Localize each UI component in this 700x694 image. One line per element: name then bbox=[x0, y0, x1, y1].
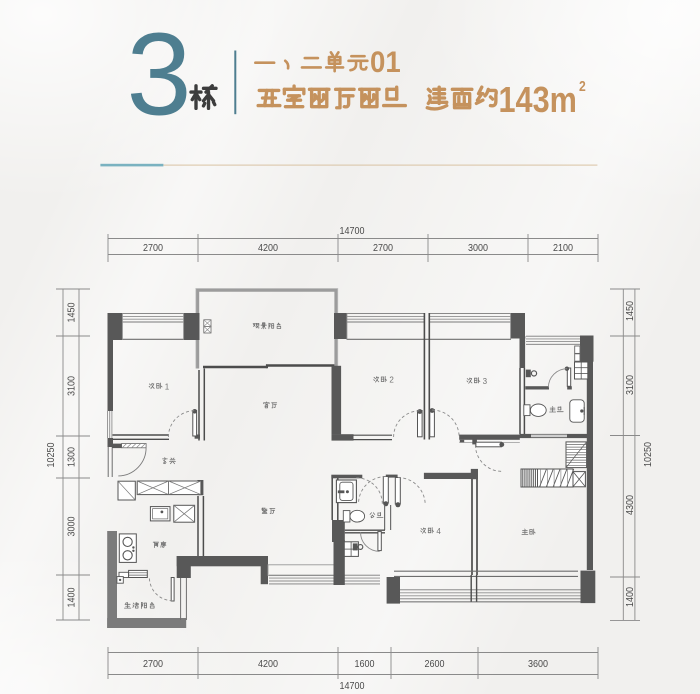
svg-text:2: 2 bbox=[579, 78, 586, 94]
svg-text:3100: 3100 bbox=[625, 375, 637, 395]
svg-text:1450: 1450 bbox=[66, 302, 78, 322]
svg-text:2100: 2100 bbox=[553, 243, 573, 255]
svg-text:2: 2 bbox=[389, 376, 394, 385]
svg-text:1400: 1400 bbox=[66, 587, 78, 607]
svg-text:14700: 14700 bbox=[340, 226, 365, 238]
svg-text:1: 1 bbox=[165, 382, 170, 391]
svg-text:1600: 1600 bbox=[354, 659, 374, 671]
svg-text:4300: 4300 bbox=[625, 495, 637, 515]
svg-text:2700: 2700 bbox=[143, 243, 163, 255]
svg-text:3600: 3600 bbox=[528, 659, 548, 671]
svg-text:2700: 2700 bbox=[373, 243, 393, 255]
svg-text:4200: 4200 bbox=[258, 659, 278, 671]
svg-text:3000: 3000 bbox=[468, 243, 488, 255]
svg-text:143m: 143m bbox=[499, 80, 577, 121]
svg-text:4: 4 bbox=[436, 527, 441, 536]
svg-text:10250: 10250 bbox=[643, 442, 655, 467]
svg-text:3100: 3100 bbox=[66, 376, 78, 396]
svg-text:1300: 1300 bbox=[66, 447, 78, 467]
svg-text:1400: 1400 bbox=[625, 587, 637, 607]
svg-text:1450: 1450 bbox=[625, 301, 637, 321]
svg-text:14700: 14700 bbox=[340, 681, 365, 693]
svg-text:2700: 2700 bbox=[143, 659, 163, 671]
svg-text:3000: 3000 bbox=[66, 516, 78, 536]
svg-text:4200: 4200 bbox=[258, 243, 278, 255]
svg-text:2600: 2600 bbox=[424, 659, 444, 671]
svg-text:10250: 10250 bbox=[46, 443, 58, 468]
svg-text:3: 3 bbox=[483, 377, 488, 386]
svg-text:01: 01 bbox=[370, 46, 401, 79]
svg-text:3: 3 bbox=[127, 9, 192, 140]
